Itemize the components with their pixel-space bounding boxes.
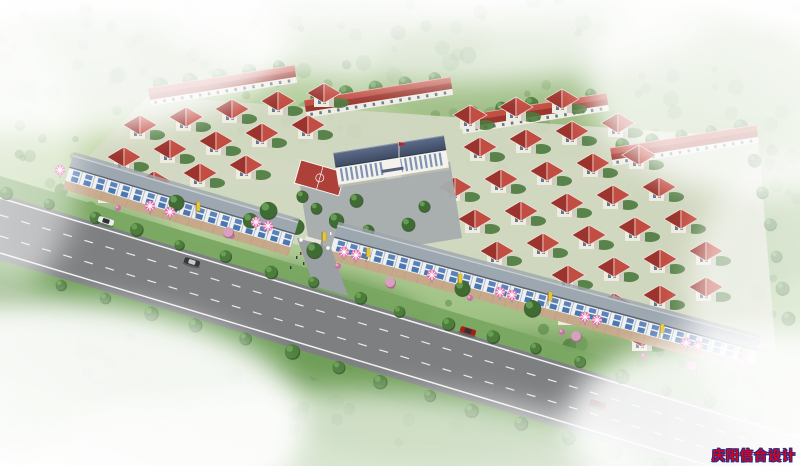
edge-vignette (0, 0, 800, 466)
aerial-site-rendering: 庆阳信合设计 (0, 0, 800, 466)
rendering-canvas (0, 0, 800, 466)
watermark-text: 庆阳信合设计 (712, 445, 796, 464)
mist-overlay (0, 0, 800, 466)
